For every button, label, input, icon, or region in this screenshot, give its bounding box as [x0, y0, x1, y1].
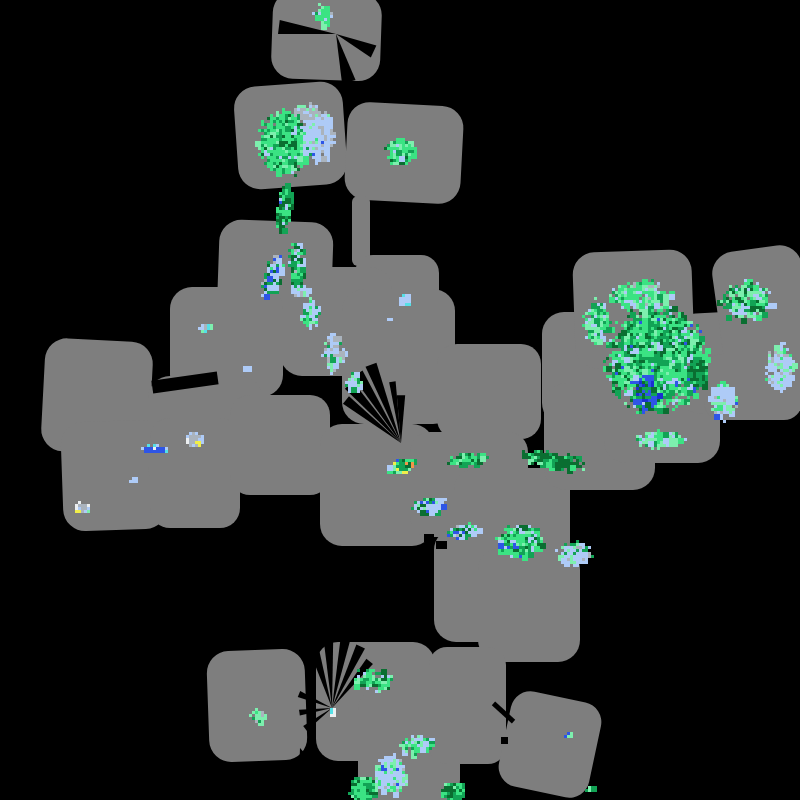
- radar-canvas: [0, 0, 800, 800]
- radar-mosaic-map: [0, 0, 800, 800]
